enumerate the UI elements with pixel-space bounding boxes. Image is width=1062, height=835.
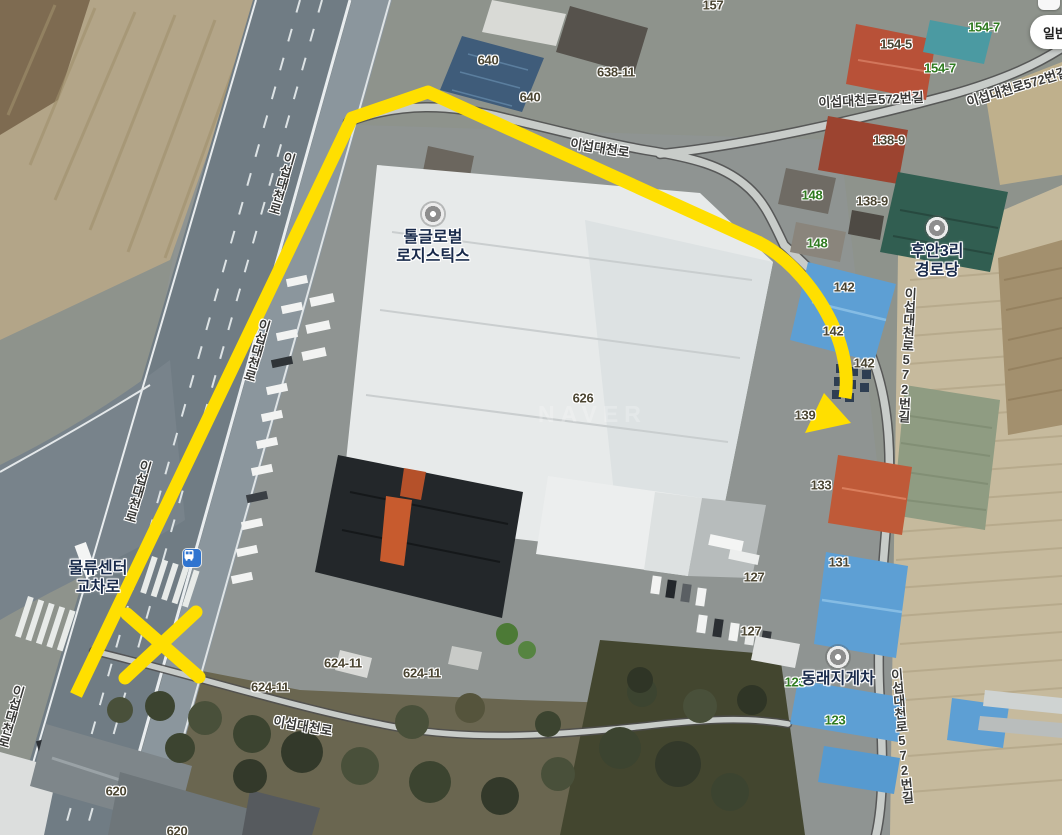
parcel-number-label: 138-9 xyxy=(856,194,888,209)
satellite-map-viewport[interactable]: NAVER 157640638-11640154-5154-7154-7138-… xyxy=(0,0,1062,835)
parcel-number-label: 154-5 xyxy=(880,37,912,52)
poi-marker[interactable] xyxy=(825,644,851,670)
bus-stop-icon[interactable] xyxy=(183,549,201,567)
warehouse-building xyxy=(315,165,773,618)
poi-label[interactable]: 후안3리 경로당 xyxy=(910,242,963,280)
poi-label[interactable]: 동래지게차 xyxy=(801,670,875,689)
parcel-number-label: 154-7 xyxy=(924,61,956,76)
parcel-number-label: 620 xyxy=(106,784,127,799)
parcel-number-label: 138-9 xyxy=(873,133,905,148)
parcel-number-label: 131 xyxy=(829,555,850,570)
parcel-number-label: 624-11 xyxy=(403,666,441,681)
parcel-number-label: 133 xyxy=(811,478,832,493)
map-type-button[interactable]: 일반 xyxy=(1030,15,1062,49)
poi-label[interactable]: 물류센터 교차로 xyxy=(69,559,128,597)
parcel-number-label: 626 xyxy=(573,391,594,406)
poi-marker[interactable] xyxy=(924,215,950,241)
parcel-number-label: 640 xyxy=(478,53,499,68)
parcel-number-label: 142 xyxy=(854,356,875,371)
parcel-number-label: 154-7 xyxy=(968,20,1000,35)
map-type-button-label: 일반 xyxy=(1043,23,1062,42)
parcel-number-label: 638-11 xyxy=(597,65,635,80)
parcel-number-label: 620 xyxy=(167,824,188,835)
parcel-number-label: 139 xyxy=(795,408,816,423)
parcel-number-label: 157 xyxy=(703,0,724,13)
poi-label[interactable]: 톨글로벌 로지스틱스 xyxy=(396,228,470,266)
parcel-number-label: 624-11 xyxy=(251,680,289,695)
parcel-number-label: 148 xyxy=(802,188,823,203)
parcel-number-label: 123 xyxy=(825,713,846,728)
parcel-number-label: 127 xyxy=(741,624,762,639)
parcel-number-label: 127 xyxy=(744,570,765,585)
parcel-number-label: 148 xyxy=(807,236,828,251)
parcel-number-label: 624-11 xyxy=(324,656,362,671)
parcel-number-label: 142 xyxy=(823,324,844,339)
map-control-partial[interactable] xyxy=(1038,0,1060,10)
parcel-number-label: 640 xyxy=(520,90,541,105)
poi-marker[interactable] xyxy=(420,201,446,227)
parcel-number-label: 142 xyxy=(834,280,855,295)
